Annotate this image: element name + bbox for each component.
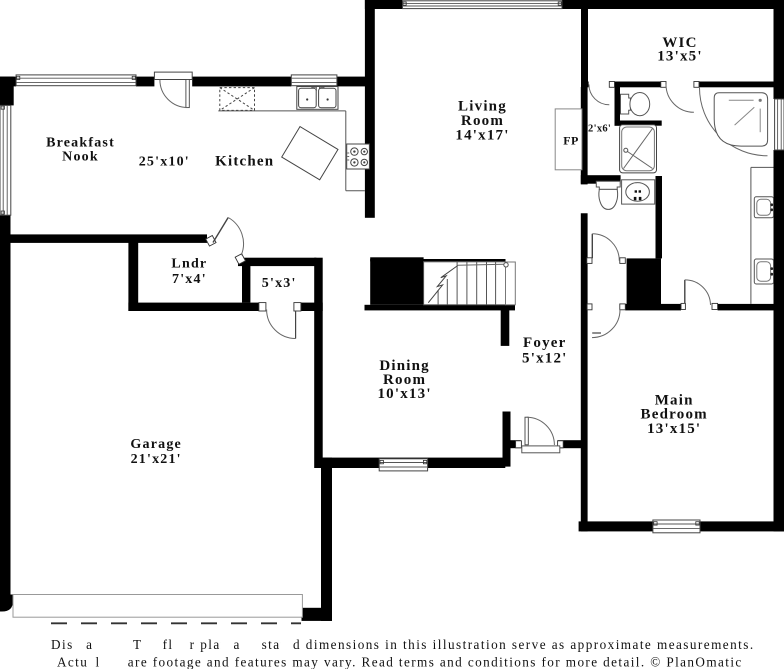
- svg-text:Kitchen: Kitchen: [215, 154, 274, 170]
- svg-text:Actual square footage and feat: Actual square footage and features may v…: [57, 655, 743, 669]
- svg-text:Nook: Nook: [62, 150, 99, 165]
- svg-text:5'x12': 5'x12': [522, 350, 568, 366]
- svg-text:Breakfast: Breakfast: [46, 136, 115, 151]
- svg-text:10'x13': 10'x13': [377, 386, 431, 402]
- svg-text:2'x6': 2'x6': [588, 124, 611, 135]
- svg-text:13'x5': 13'x5': [657, 49, 703, 65]
- svg-text:14'x17': 14'x17': [455, 128, 509, 144]
- svg-text:13'x15': 13'x15': [647, 421, 701, 437]
- svg-text:21'x21': 21'x21': [131, 452, 182, 467]
- svg-text:Lndr: Lndr: [171, 256, 207, 271]
- svg-text:Foyer: Foyer: [523, 335, 566, 351]
- svg-text:25'x10': 25'x10': [139, 155, 190, 170]
- svg-text:7'x4': 7'x4': [172, 272, 207, 287]
- svg-text:FP: FP: [563, 134, 578, 148]
- svg-text:5'x3': 5'x3': [262, 276, 297, 291]
- svg-text:Garage: Garage: [130, 437, 182, 452]
